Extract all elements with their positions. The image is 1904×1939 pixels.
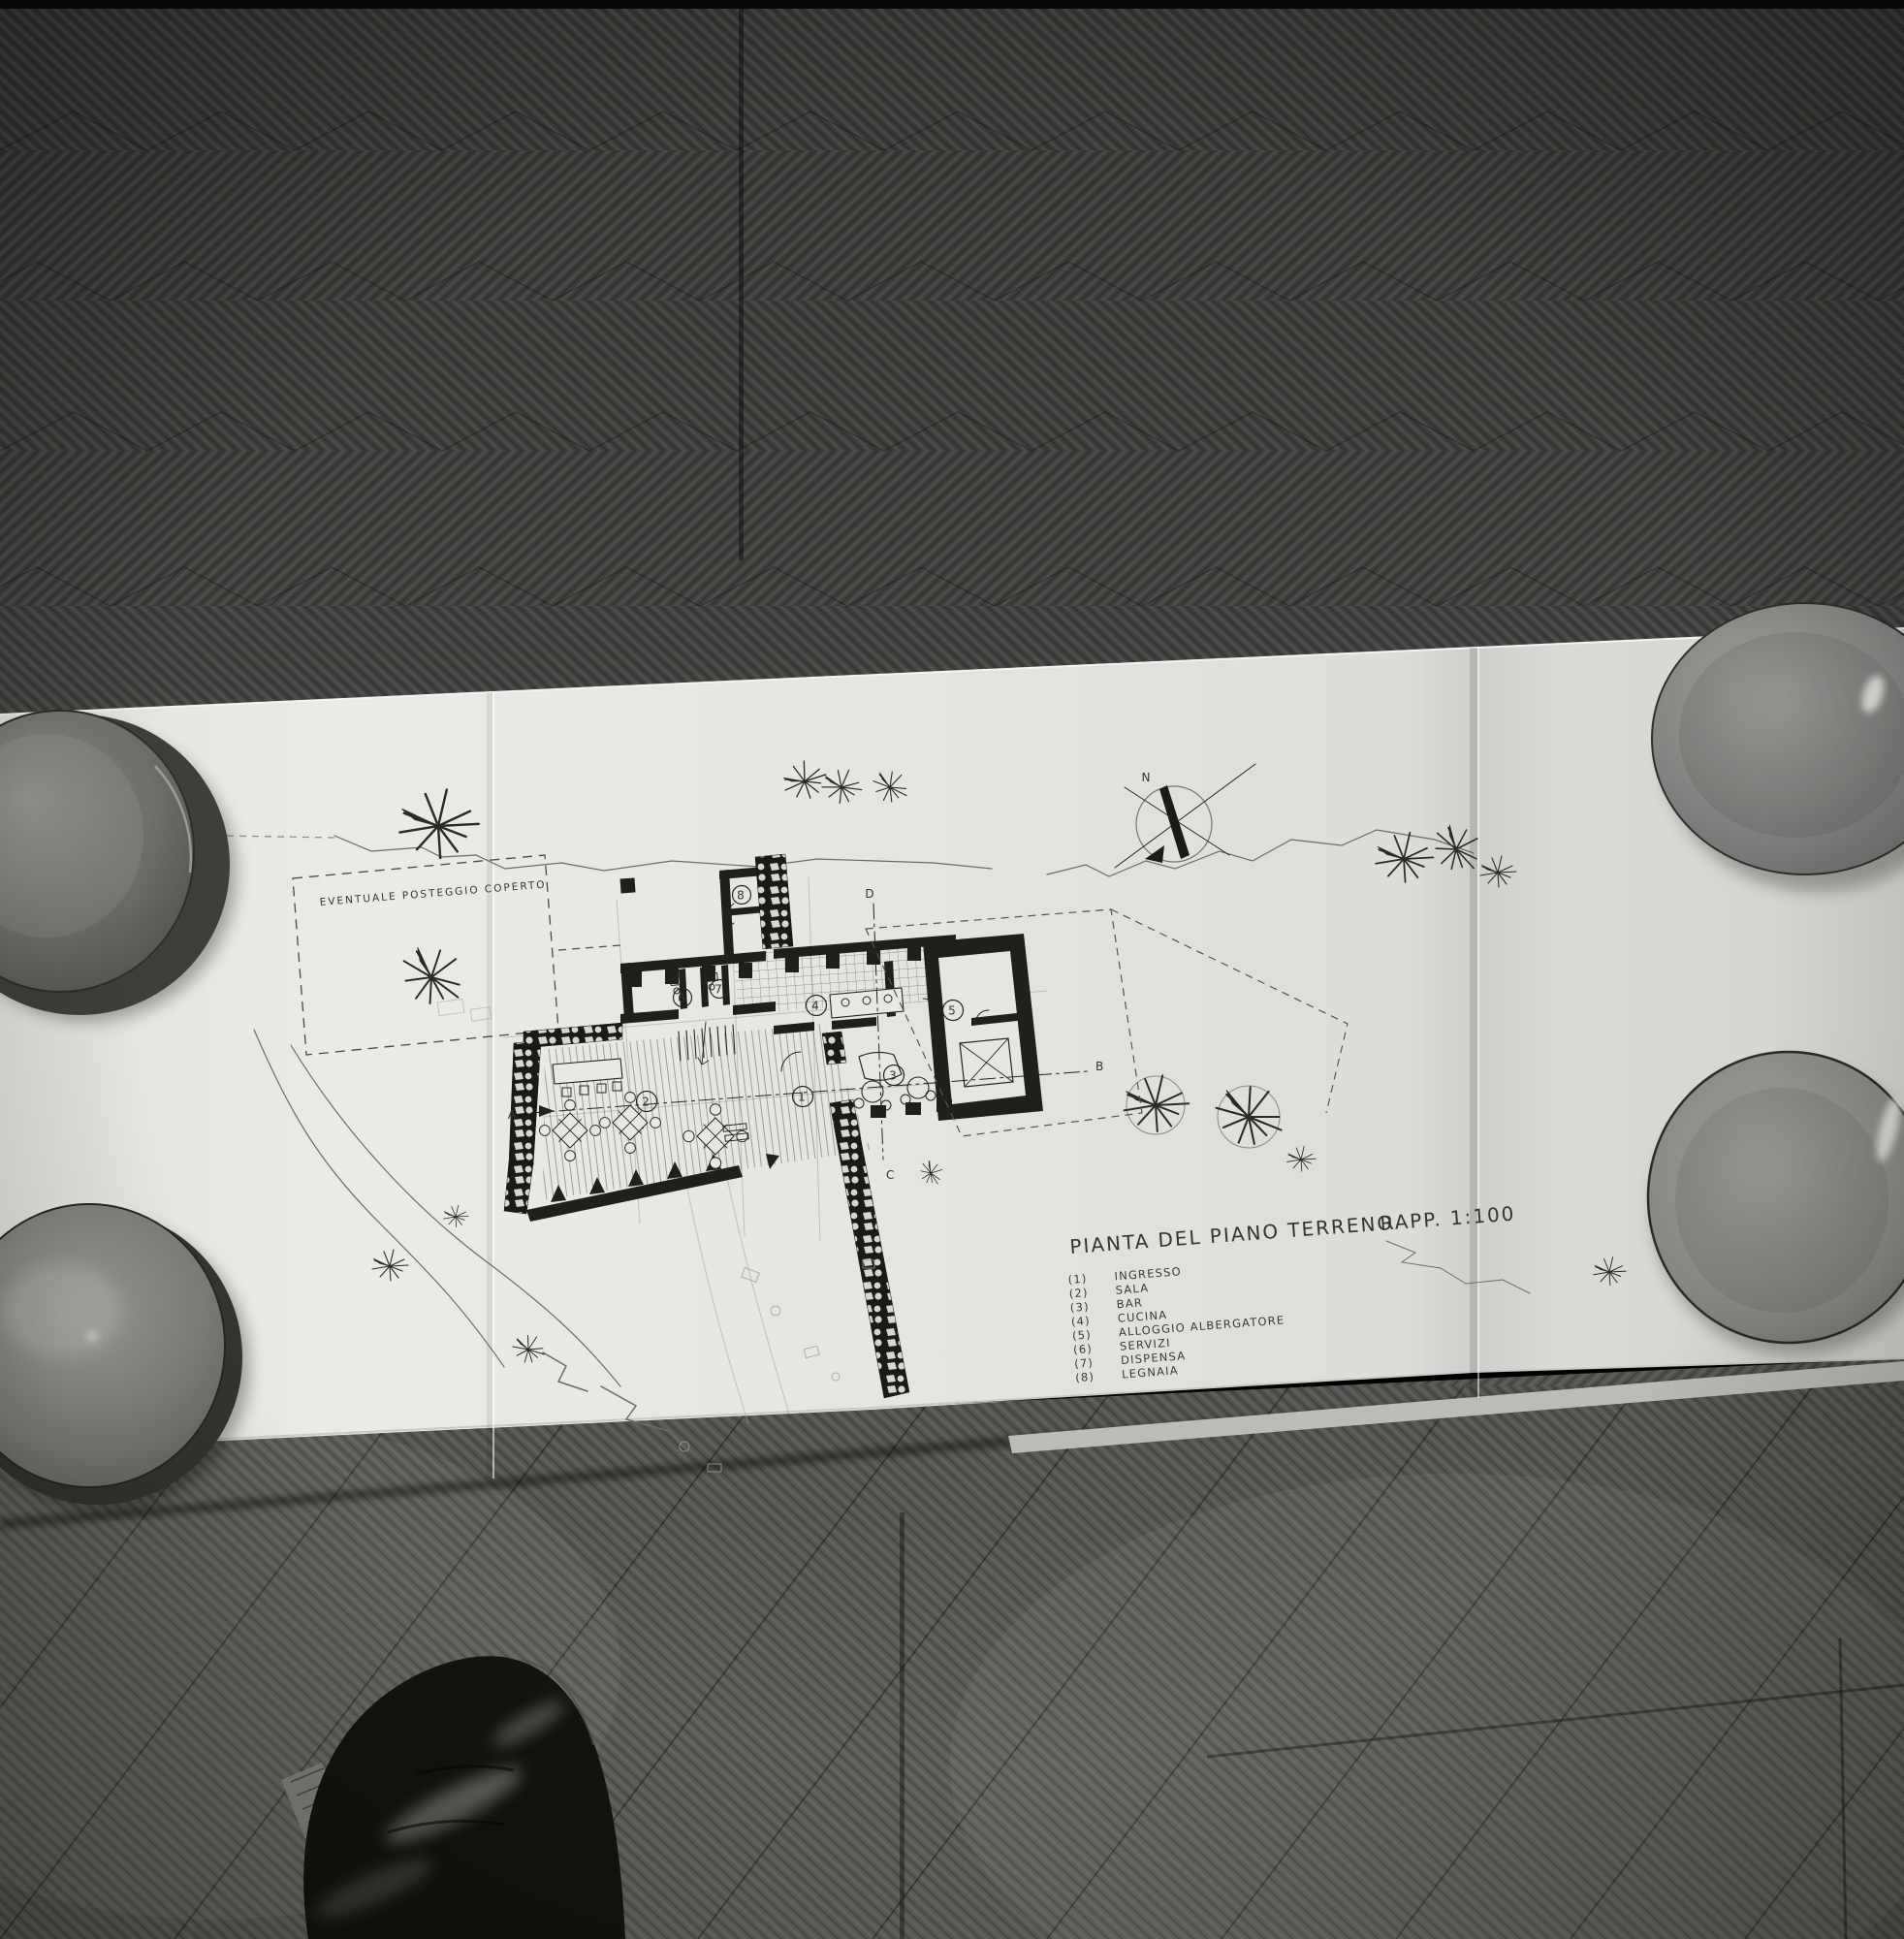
film-edge-top: [0, 0, 1904, 9]
vignette: [0, 0, 1904, 1939]
photograph: EVENTUALE POSTEGGIO COPERTO: [0, 0, 1904, 1939]
